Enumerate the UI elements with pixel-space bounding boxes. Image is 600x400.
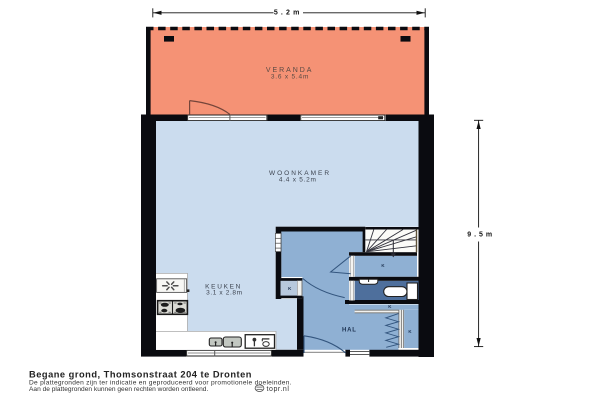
svg-text:4.4 x 5.2m: 4.4 x 5.2m: [279, 176, 317, 183]
svg-text:Aan de plattegronden kunnen ge: Aan de plattegronden kunnen geen rechten…: [29, 386, 208, 393]
svg-text:topr.nl: topr.nl: [267, 386, 290, 393]
svg-text:3.1 x 2.8m: 3.1 x 2.8m: [206, 290, 243, 297]
svg-text:5.2m: 5.2m: [274, 9, 303, 16]
svg-text:9.5m: 9.5m: [467, 232, 495, 239]
svg-text:Begane grond, Thomsonstraat 20: Begane grond, Thomsonstraat 204 te Dront…: [29, 370, 252, 380]
svg-text:3.6 x 5.4m: 3.6 x 5.4m: [271, 73, 309, 80]
svg-text:HAL: HAL: [342, 328, 357, 334]
